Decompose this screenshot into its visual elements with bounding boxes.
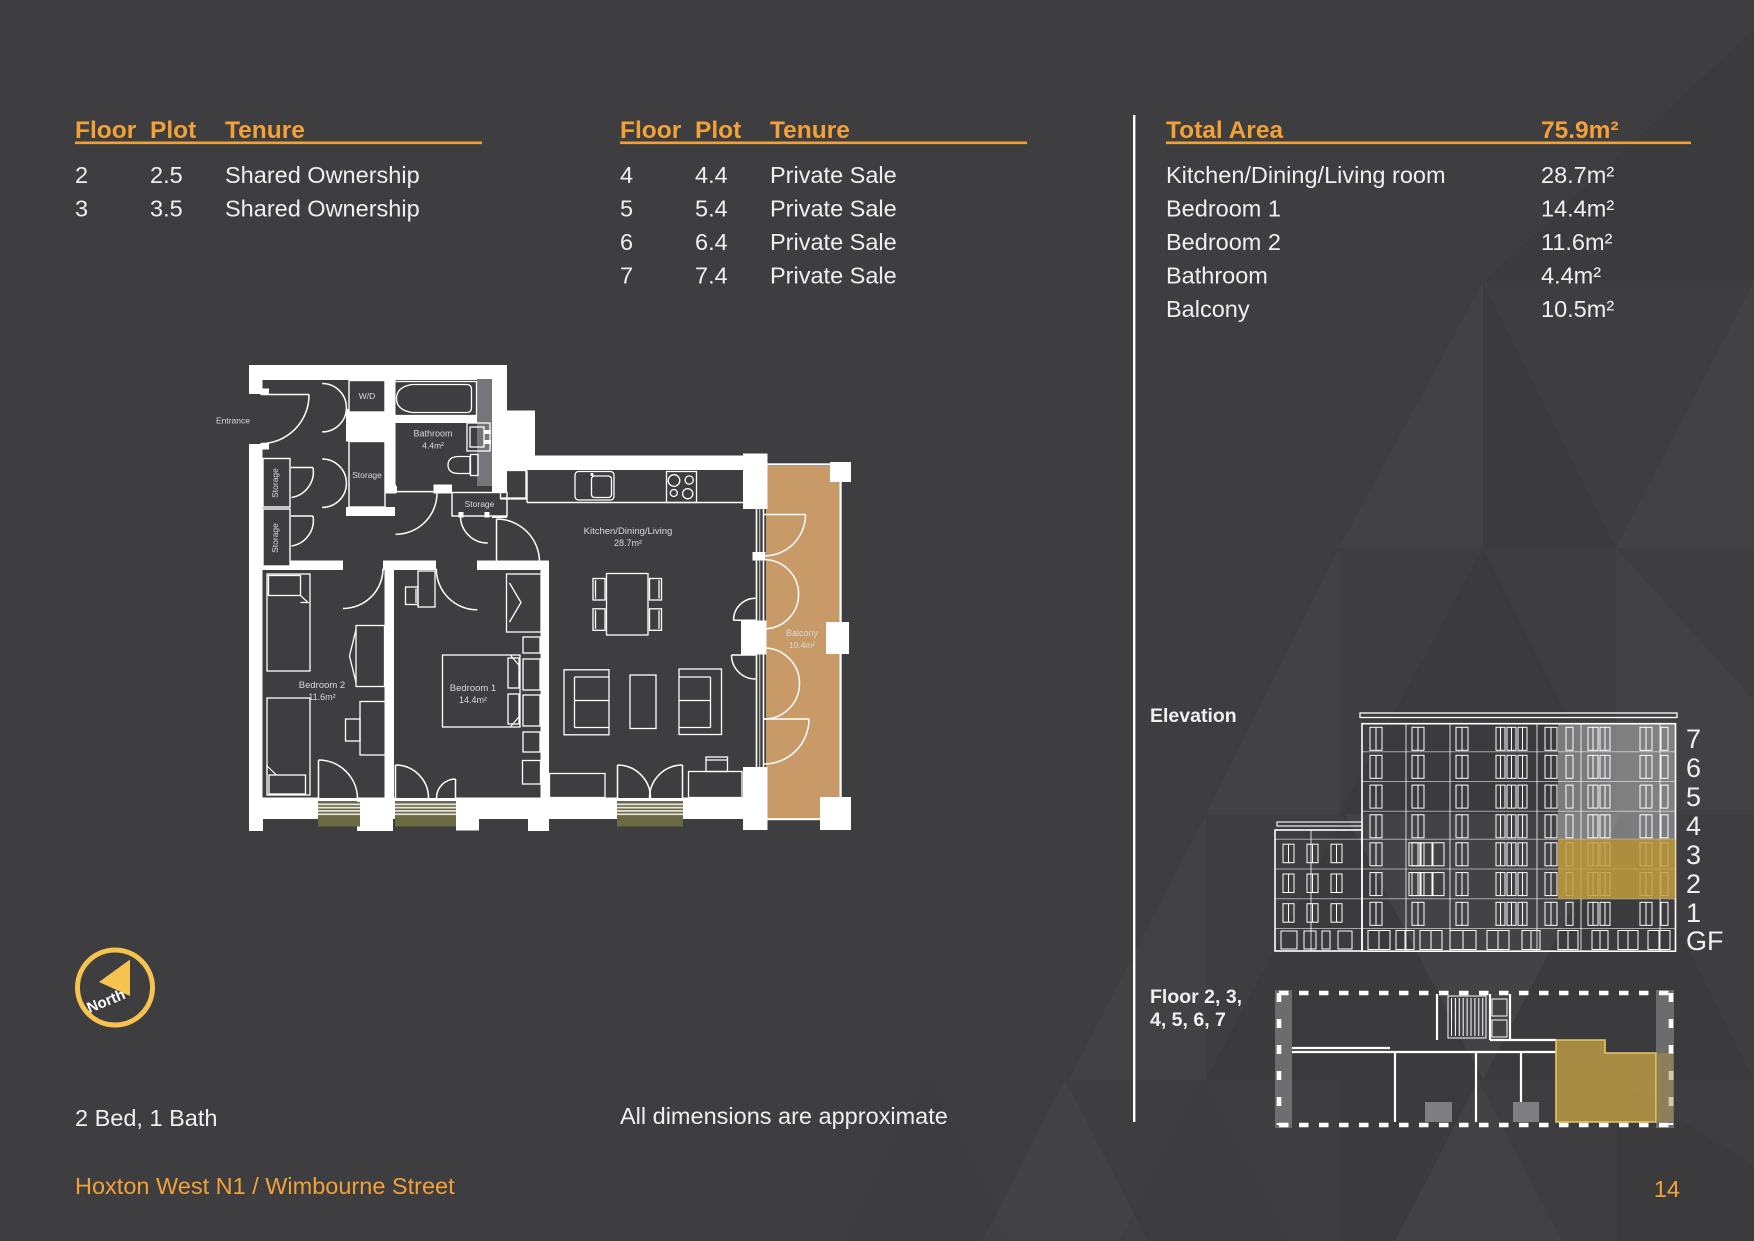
svg-text:4, 5, 6, 7: 4, 5, 6, 7	[1150, 1009, 1226, 1031]
svg-text:28.7m²: 28.7m²	[614, 538, 642, 548]
svg-text:Floor 2, 3,: Floor 2, 3,	[1150, 986, 1242, 1008]
svg-text:2.5: 2.5	[150, 162, 183, 188]
svg-text:75.9m²: 75.9m²	[1541, 117, 1619, 144]
svg-text:4: 4	[1686, 811, 1701, 841]
svg-text:2: 2	[1686, 869, 1701, 899]
svg-text:5.4: 5.4	[695, 196, 728, 222]
svg-text:W/D: W/D	[359, 391, 376, 401]
svg-text:GF: GF	[1686, 926, 1724, 956]
svg-text:10.5m²: 10.5m²	[1541, 296, 1614, 322]
svg-text:Shared Ownership: Shared Ownership	[225, 196, 420, 222]
svg-text:Private Sale: Private Sale	[770, 196, 897, 222]
svg-text:14.4m²: 14.4m²	[459, 695, 487, 705]
svg-text:1: 1	[1686, 898, 1701, 928]
svg-text:4.4: 4.4	[695, 162, 728, 188]
svg-text:Tenure: Tenure	[770, 117, 850, 144]
svg-text:Storage: Storage	[465, 499, 495, 509]
svg-text:North: North	[84, 986, 127, 1017]
svg-text:Elevation: Elevation	[1150, 705, 1237, 727]
svg-text:Total Area: Total Area	[1166, 117, 1283, 144]
svg-text:14: 14	[1654, 1176, 1680, 1202]
svg-text:5: 5	[620, 196, 633, 222]
svg-text:Hoxton West N1 / Wimbourne Str: Hoxton West N1 / Wimbourne Street	[75, 1173, 455, 1199]
svg-text:3.5: 3.5	[150, 196, 183, 222]
svg-text:3: 3	[75, 196, 88, 222]
svg-text:2: 2	[75, 162, 88, 188]
svg-text:6: 6	[620, 229, 633, 255]
svg-text:11.6m²: 11.6m²	[308, 692, 335, 702]
svg-text:Bathroom: Bathroom	[1166, 263, 1268, 289]
svg-text:4.4m²: 4.4m²	[1541, 263, 1601, 289]
svg-text:Private Sale: Private Sale	[770, 229, 897, 255]
svg-text:Storage: Storage	[270, 468, 280, 498]
svg-text:Tenure: Tenure	[225, 117, 305, 144]
svg-text:Floor: Floor	[75, 117, 137, 144]
svg-text:Shared Ownership: Shared Ownership	[225, 162, 420, 188]
svg-text:10.4m²: 10.4m²	[789, 640, 816, 650]
svg-text:Floor: Floor	[620, 117, 682, 144]
svg-text:Kitchen/Dining/Living room: Kitchen/Dining/Living room	[1166, 162, 1446, 188]
svg-text:14.4m²: 14.4m²	[1541, 196, 1614, 222]
svg-text:Plot: Plot	[695, 117, 741, 144]
svg-text:6: 6	[1686, 753, 1701, 783]
svg-text:Private Sale: Private Sale	[770, 162, 897, 188]
svg-text:Plot: Plot	[150, 117, 196, 144]
svg-text:Bedroom 1: Bedroom 1	[1166, 196, 1281, 222]
svg-text:Bedroom 1: Bedroom 1	[450, 683, 496, 694]
svg-text:Balcony: Balcony	[1166, 296, 1250, 322]
svg-text:28.7m²: 28.7m²	[1541, 162, 1614, 188]
svg-text:Bathroom: Bathroom	[413, 429, 452, 439]
svg-text:Storage: Storage	[270, 523, 280, 553]
svg-text:7: 7	[1686, 724, 1701, 754]
svg-text:Storage: Storage	[352, 470, 382, 480]
svg-text:Private Sale: Private Sale	[770, 263, 897, 289]
svg-text:Balcony: Balcony	[786, 628, 819, 638]
svg-text:All dimensions are approximate: All dimensions are approximate	[620, 1103, 948, 1129]
svg-text:4.4m²: 4.4m²	[422, 441, 444, 451]
svg-text:3: 3	[1686, 840, 1701, 870]
svg-text:11.6m²: 11.6m²	[1541, 229, 1613, 255]
svg-text:Entrance: Entrance	[216, 416, 250, 426]
svg-text:2 Bed, 1 Bath: 2 Bed, 1 Bath	[75, 1105, 217, 1131]
svg-text:4: 4	[620, 162, 633, 188]
svg-text:Kitchen/Dining/Living: Kitchen/Dining/Living	[584, 526, 673, 537]
svg-text:7: 7	[620, 263, 633, 289]
svg-text:Bedroom 2: Bedroom 2	[1166, 229, 1281, 255]
svg-text:5: 5	[1686, 782, 1701, 812]
svg-text:6.4: 6.4	[695, 229, 728, 255]
svg-text:Bedroom 2: Bedroom 2	[299, 680, 345, 691]
svg-text:7.4: 7.4	[695, 263, 728, 289]
